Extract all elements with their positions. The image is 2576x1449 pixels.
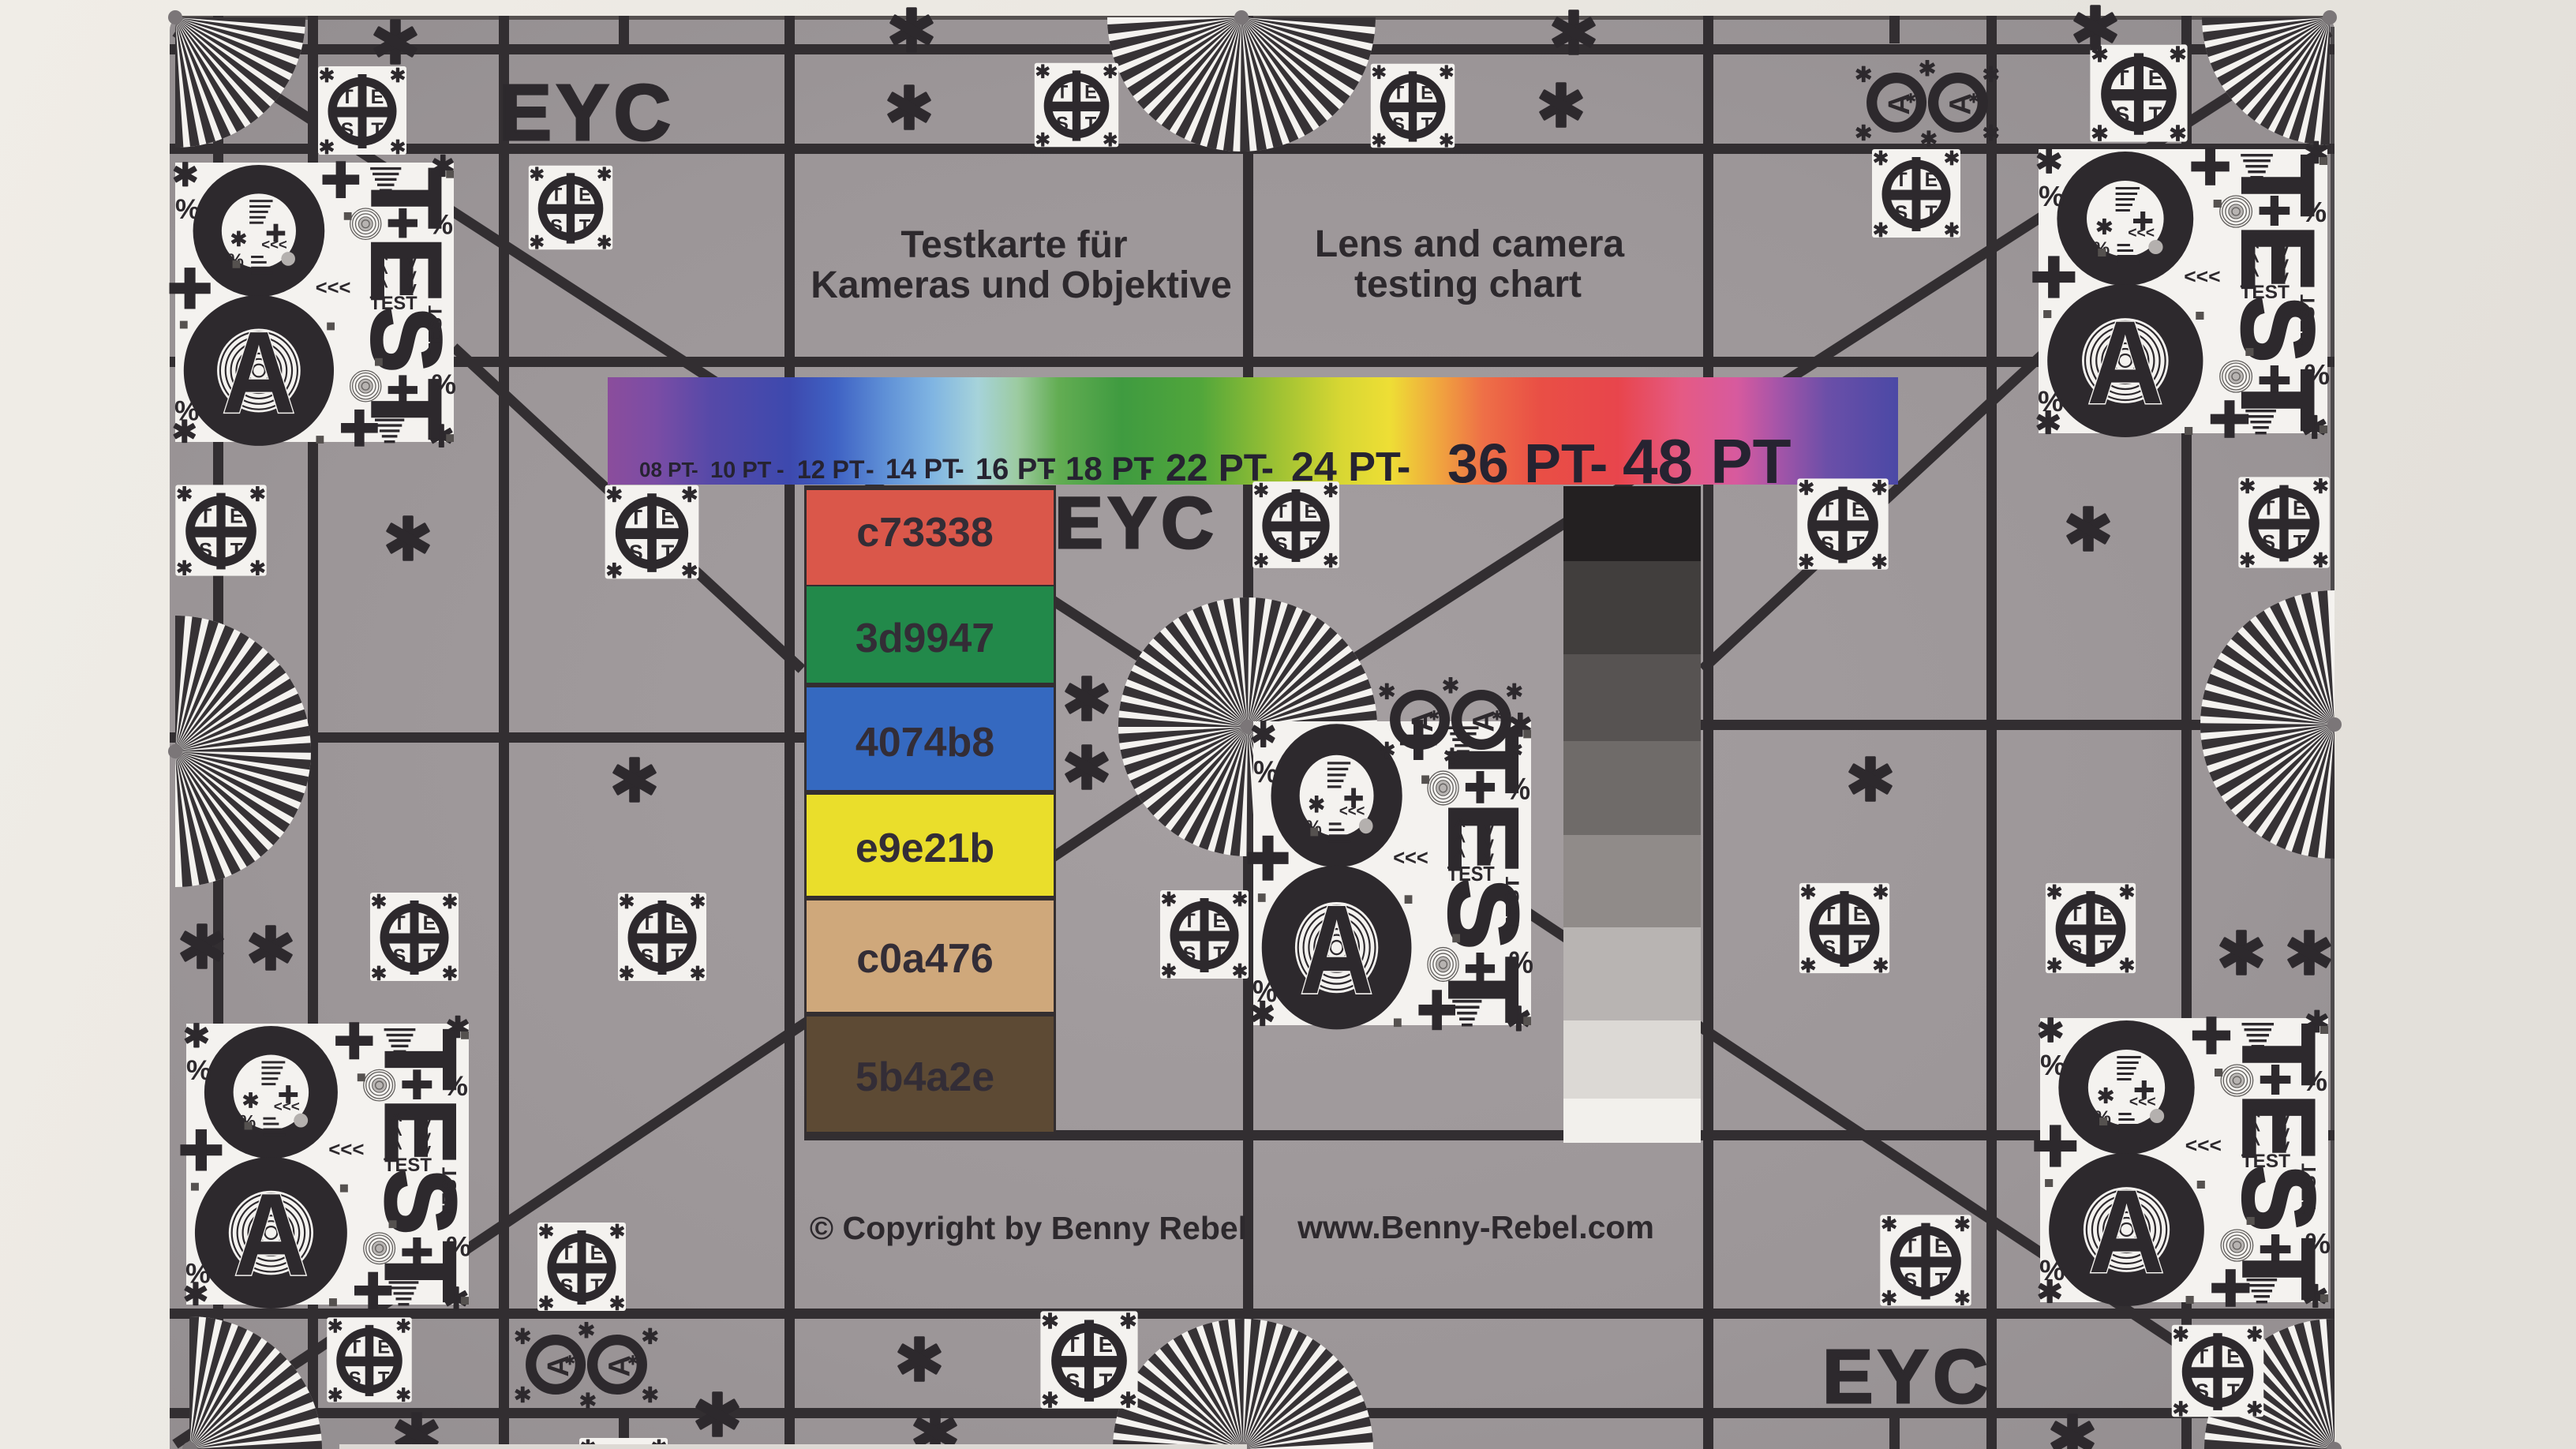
svg-text:%: % (175, 194, 200, 225)
svg-text:T: T (1428, 957, 1539, 1023)
svg-text:EYC: EYC (1822, 1335, 1992, 1419)
svg-text:S: S (550, 215, 563, 237)
svg-text:E: E (1853, 904, 1866, 926)
svg-text:T: T (560, 1242, 572, 1264)
svg-text:14 PT: 14 PT (885, 454, 959, 485)
svg-text:S: S (393, 945, 406, 968)
svg-text:T: T (2263, 498, 2275, 520)
svg-text:T: T (630, 505, 642, 529)
svg-text:A: A (2087, 297, 2163, 429)
svg-text:%: % (2040, 1049, 2065, 1081)
svg-text:TEST: TEST (425, 305, 446, 355)
svg-text:T: T (1895, 169, 1907, 191)
svg-text:<<<: <<< (2185, 1133, 2222, 1157)
svg-text:-: - (1045, 453, 1055, 486)
svg-text:E: E (1925, 169, 1938, 191)
svg-text:E: E (590, 1242, 604, 1264)
svg-text:v: v (2279, 268, 2289, 286)
svg-text:T: T (641, 912, 653, 934)
svg-text:10 PT: 10 PT (710, 458, 772, 483)
svg-text:Lens and camera: Lens and camera (1315, 223, 1624, 265)
svg-text:E: E (1851, 500, 1865, 522)
svg-text:www.Benny-Rebel.com: www.Benny-Rebel.com (1297, 1209, 1654, 1245)
svg-text:T: T (2116, 66, 2129, 90)
svg-text:E: E (1084, 81, 1097, 103)
svg-text:T: T (579, 215, 591, 237)
svg-text:E: E (371, 86, 384, 108)
svg-text:v: v (421, 1140, 431, 1159)
svg-text:16 PT: 16 PT (975, 453, 1055, 486)
svg-text:T: T (1099, 1368, 1112, 1393)
svg-text:TEST: TEST (2297, 294, 2320, 344)
svg-text:^: ^ (2248, 264, 2260, 286)
svg-text:EYC: EYC (1054, 483, 1218, 563)
svg-text:-: - (1141, 450, 1152, 487)
svg-text:v: v (1485, 848, 1493, 867)
svg-text:T: T (393, 912, 405, 934)
svg-text:T: T (1421, 114, 1433, 135)
svg-text:T: T (1852, 534, 1865, 556)
svg-text:S: S (2115, 102, 2129, 126)
svg-text:S: S (1895, 202, 1908, 224)
svg-text:T: T (350, 168, 462, 229)
svg-text:5b4a2e: 5b4a2e (856, 1054, 994, 1100)
svg-text:T: T (378, 1368, 390, 1390)
svg-text:T: T (1213, 943, 1225, 965)
svg-text:TEST: TEST (1502, 876, 1523, 930)
svg-text:E: E (661, 505, 675, 529)
svg-text:<<<: <<< (316, 277, 351, 299)
svg-text:-: - (866, 455, 874, 484)
svg-text:Kameras und Objektive: Kameras und Objektive (811, 264, 1232, 306)
svg-text:S: S (1065, 1368, 1080, 1393)
svg-text:^: ^ (391, 1138, 402, 1159)
svg-text:4074b8: 4074b8 (856, 720, 994, 766)
svg-text:T: T (365, 1029, 477, 1090)
svg-text:T: T (371, 119, 383, 141)
svg-text:S: S (2196, 1379, 2209, 1402)
svg-text:3d9947: 3d9947 (856, 616, 994, 661)
svg-text:<<<: <<< (1393, 845, 1428, 870)
svg-text:T: T (2227, 1379, 2240, 1402)
svg-text:<<<: <<< (2184, 264, 2220, 288)
svg-text:c0a476: c0a476 (856, 936, 994, 982)
svg-text:T: T (2293, 532, 2306, 554)
svg-text:E: E (1421, 82, 1433, 103)
svg-text:v: v (407, 279, 417, 297)
svg-text:S: S (560, 1275, 574, 1297)
svg-text:e9e21b: e9e21b (856, 826, 994, 871)
svg-text:E: E (1304, 501, 1316, 522)
svg-text:EYC: EYC (499, 69, 676, 157)
svg-text:c73338: c73338 (856, 510, 994, 556)
svg-text:T: T (1393, 82, 1405, 103)
svg-text:T: T (365, 1241, 477, 1302)
svg-text:E: E (230, 506, 243, 528)
svg-text:E: E (1213, 910, 1226, 932)
svg-text:T: T (1904, 1236, 1917, 1258)
svg-text:-: - (1397, 444, 1410, 490)
svg-text:%: % (1253, 755, 1278, 789)
svg-text:T: T (200, 506, 212, 528)
svg-text:T: T (341, 86, 353, 108)
svg-text:testing chart: testing chart (1354, 264, 1582, 305)
svg-text:^: ^ (377, 276, 388, 298)
svg-text:E: E (671, 912, 684, 934)
svg-text:A: A (222, 308, 295, 438)
svg-text:E: E (1099, 1332, 1113, 1357)
svg-text:<<<: <<< (328, 1139, 364, 1161)
svg-text:E: E (578, 184, 591, 205)
svg-text:T: T (2220, 369, 2334, 431)
svg-text:T: T (1428, 727, 1539, 793)
svg-text:T: T (1183, 910, 1195, 932)
svg-text:T: T (1823, 904, 1836, 926)
svg-text:A: A (1300, 878, 1373, 1020)
svg-text:T: T (661, 541, 674, 564)
svg-text:E: E (423, 912, 436, 934)
svg-text:S: S (1821, 534, 1834, 556)
svg-text:Testkarte für: Testkarte für (900, 224, 1127, 266)
svg-text:T: T (1935, 1270, 1948, 1292)
svg-text:T: T (1854, 938, 1866, 960)
svg-text:E: E (1934, 1236, 1948, 1258)
svg-text:E: E (2148, 66, 2162, 90)
svg-text:E: E (2293, 498, 2306, 520)
svg-text:T: T (349, 1336, 361, 1357)
svg-text:T: T (230, 540, 243, 562)
svg-text:T: T (2100, 938, 2113, 960)
svg-text:S: S (349, 1368, 361, 1390)
svg-text:T: T (671, 945, 683, 968)
svg-text:S: S (1275, 534, 1287, 555)
svg-text:T: T (423, 945, 435, 968)
svg-text:T: T (2069, 904, 2082, 926)
svg-text:T: T (1925, 202, 1937, 224)
svg-text:E: E (2226, 1345, 2240, 1368)
svg-text:^: ^ (2248, 1133, 2260, 1155)
svg-text:-: - (777, 458, 784, 483)
svg-text:T: T (1275, 501, 1287, 522)
svg-text:T: T (2220, 155, 2334, 216)
svg-text:A: A (234, 1169, 309, 1300)
svg-text:A: A (2088, 1166, 2165, 1298)
svg-text:E: E (2099, 904, 2113, 926)
svg-text:%: % (2039, 180, 2065, 212)
svg-text:12 PT: 12 PT (797, 455, 865, 484)
svg-text:TEST: TEST (2298, 1163, 2320, 1213)
svg-text:T: T (2196, 1345, 2208, 1368)
svg-text:36 PT: 36 PT (1447, 432, 1595, 494)
svg-text:S: S (341, 119, 354, 141)
svg-text:%: % (186, 1054, 212, 1086)
svg-text:T: T (2148, 102, 2162, 126)
svg-text:T: T (350, 379, 462, 440)
svg-text:S: S (1822, 938, 1836, 960)
svg-text:-: - (1589, 432, 1608, 494)
svg-text:S: S (199, 540, 212, 562)
svg-text:© Copyright by Benny Rebel: © Copyright by Benny Rebel (810, 1210, 1247, 1246)
svg-text:S: S (1183, 943, 1196, 965)
svg-text:T: T (590, 1275, 602, 1297)
svg-text:08 PT: 08 PT (639, 458, 694, 481)
svg-text:S: S (629, 541, 643, 564)
svg-text:TEST: TEST (440, 1167, 461, 1217)
svg-text:-: - (691, 458, 698, 481)
svg-text:^: ^ (1455, 845, 1466, 868)
svg-text:T: T (1057, 81, 1069, 103)
svg-text:T: T (551, 184, 563, 205)
svg-text:S: S (1392, 114, 1405, 135)
svg-text:S: S (641, 945, 654, 968)
svg-text:T: T (1822, 500, 1834, 522)
svg-text:T: T (1085, 113, 1097, 134)
svg-text:T: T (2222, 1024, 2336, 1085)
svg-text:S: S (1904, 1270, 1917, 1292)
svg-text:-: - (955, 454, 964, 485)
svg-text:48 PT: 48 PT (1623, 426, 1792, 496)
svg-text:S: S (2069, 938, 2082, 960)
svg-text:T: T (1305, 534, 1316, 555)
svg-text:E: E (377, 1336, 390, 1357)
svg-text:T: T (2222, 1238, 2336, 1300)
svg-text:S: S (2262, 532, 2275, 554)
svg-text:v: v (2280, 1136, 2290, 1155)
svg-text:S: S (1056, 113, 1069, 134)
svg-text:T: T (1066, 1332, 1080, 1357)
